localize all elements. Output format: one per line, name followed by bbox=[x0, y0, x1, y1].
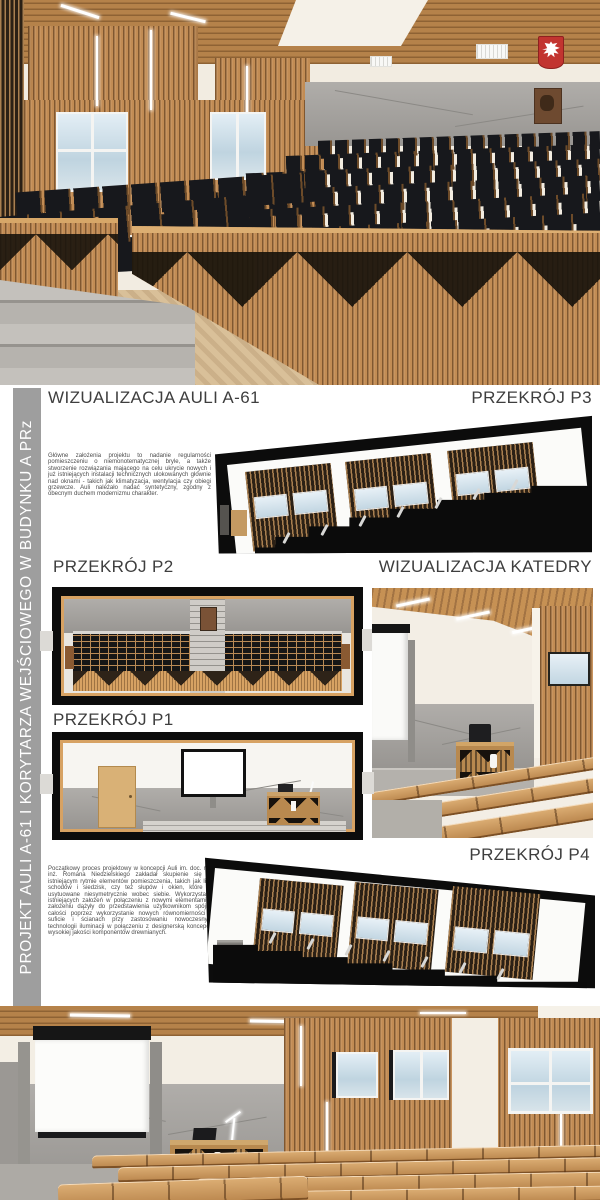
door-handle bbox=[129, 795, 132, 798]
section-interior bbox=[60, 740, 355, 832]
label-przekroj-p4: PRZEKRÓJ P4 bbox=[469, 846, 590, 864]
window-mullion bbox=[420, 1052, 423, 1098]
window bbox=[210, 112, 266, 180]
render-hall-front bbox=[0, 1006, 600, 1200]
section-window bbox=[394, 920, 429, 945]
paragraph-design-process: Początkowy proces projektowy w koncepcji… bbox=[48, 866, 214, 936]
seat-block-left bbox=[73, 634, 191, 672]
label-przekroj-p2: PRZEKRÓJ P2 bbox=[53, 558, 174, 576]
window bbox=[336, 1052, 378, 1098]
window-mullion bbox=[549, 1051, 552, 1111]
section-window bbox=[292, 490, 328, 515]
screen-post bbox=[18, 1042, 30, 1184]
section-window bbox=[299, 912, 334, 937]
section-interior bbox=[64, 599, 351, 693]
portrait-plaque bbox=[534, 88, 562, 124]
screen-stand bbox=[210, 797, 216, 808]
recessed-light bbox=[150, 30, 152, 110]
label-viz-aula: WIZUALIZACJA AULI A-61 bbox=[48, 389, 260, 407]
section-rack bbox=[220, 505, 229, 535]
project-title-bar: PROJEKT AULI A-61 I KORYTARZA WEJŚCIOWEG… bbox=[13, 388, 41, 1006]
window bbox=[508, 1048, 593, 1114]
polish-eagle-icon bbox=[539, 37, 563, 68]
door-tab bbox=[40, 631, 53, 651]
plaque-relief bbox=[540, 95, 554, 111]
door bbox=[98, 766, 135, 829]
window bbox=[548, 652, 590, 686]
section-drawing-p1 bbox=[52, 732, 363, 840]
floor bbox=[372, 800, 442, 838]
project-title: PROJEKT AULI A-61 I KORYTARZA WEJŚCIOWEG… bbox=[18, 420, 36, 974]
concrete-seam bbox=[455, 106, 584, 127]
presentation-board: WIZUALIZACJA AULI A-61 PRZEKRÓJ P3 PROJE… bbox=[0, 0, 600, 1200]
section-window bbox=[493, 930, 530, 957]
ceiling-light bbox=[420, 1012, 466, 1014]
vent-grille bbox=[476, 44, 508, 59]
screen-top-bar bbox=[33, 1026, 151, 1040]
section-drawing-p2 bbox=[52, 587, 363, 705]
recessed-light bbox=[96, 36, 98, 106]
window bbox=[393, 1050, 449, 1100]
desk-logo bbox=[291, 801, 296, 811]
front-barrier-zigzag bbox=[73, 671, 343, 691]
section-desk bbox=[231, 510, 247, 536]
section-window bbox=[393, 482, 429, 507]
screen-bottom-bar bbox=[38, 1132, 146, 1138]
section-window bbox=[354, 486, 389, 511]
section-window bbox=[254, 494, 289, 519]
window bbox=[56, 112, 128, 192]
section-drawing-p4 bbox=[205, 852, 595, 997]
section-drawing-p3 bbox=[215, 410, 592, 558]
label-przekroj-p1: PRZEKRÓJ P1 bbox=[53, 711, 174, 729]
recessed-light bbox=[300, 1026, 302, 1086]
desk-logo bbox=[490, 754, 497, 768]
polish-eagle-emblem bbox=[538, 36, 564, 69]
door-tab bbox=[40, 774, 53, 794]
side-chair bbox=[65, 646, 74, 669]
section-window bbox=[356, 916, 390, 941]
window-mullion bbox=[58, 149, 126, 152]
vent-grille bbox=[370, 56, 392, 67]
portrait-plaque bbox=[200, 607, 216, 632]
render-aula-visualization bbox=[0, 0, 600, 385]
label-przekroj-p3: PRZEKRÓJ P3 bbox=[471, 389, 592, 407]
window-mullion bbox=[511, 1082, 590, 1085]
door-tab bbox=[362, 772, 374, 794]
section-window bbox=[455, 471, 490, 496]
window-mullion bbox=[236, 114, 239, 178]
concrete-seam bbox=[168, 1117, 267, 1135]
projection-screen bbox=[372, 630, 408, 740]
laptop bbox=[278, 784, 293, 791]
paragraph-design-goals: Główne założenia projektu to nadanie reg… bbox=[48, 453, 211, 498]
section-window bbox=[261, 908, 295, 933]
window-mullion bbox=[91, 114, 94, 190]
katedra-desk bbox=[267, 792, 320, 825]
concrete-seam bbox=[335, 90, 473, 115]
projection-screen bbox=[181, 749, 246, 797]
seat-block-right bbox=[225, 634, 343, 672]
side-chair bbox=[341, 644, 350, 668]
screen-top-bar bbox=[372, 624, 410, 633]
section-window bbox=[453, 926, 489, 953]
screen-pillar bbox=[408, 640, 415, 762]
projection-screen bbox=[35, 1040, 149, 1132]
slat-wall-panel bbox=[445, 886, 541, 980]
label-viz-katedra: WIZUALIZACJA KATEDRY bbox=[379, 558, 592, 576]
right-slat-wall bbox=[540, 606, 593, 768]
render-katedra-visualization bbox=[372, 588, 593, 838]
